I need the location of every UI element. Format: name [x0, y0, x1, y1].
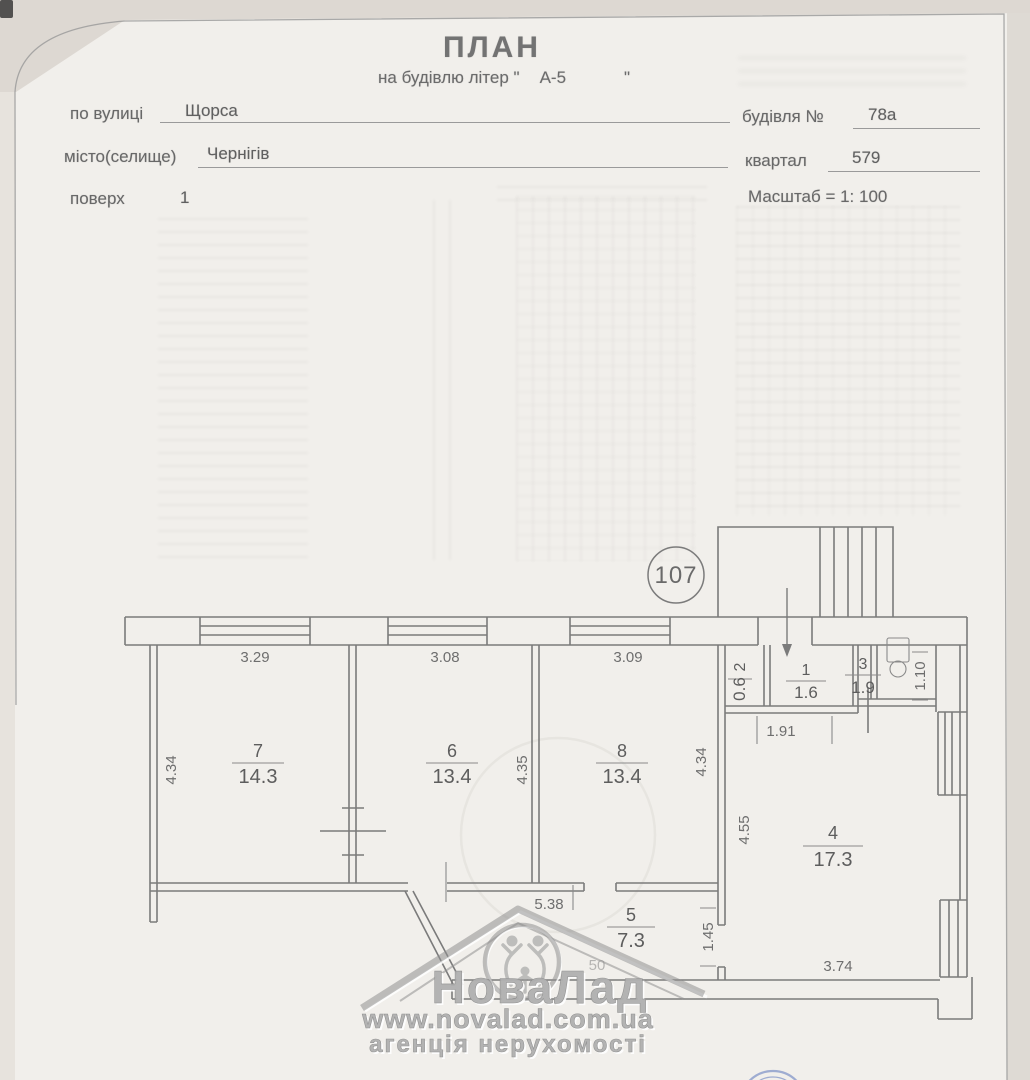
watermark-url: www.novalad.com.ua — [361, 1004, 654, 1034]
right-wall-with-windows — [936, 617, 967, 977]
dim-room8-width: 3.09 — [613, 649, 642, 666]
room2-number: 2 — [732, 662, 749, 671]
unit-number: 107 — [654, 562, 697, 589]
room3-area: 1.9 — [851, 678, 875, 697]
dim-room8-depth: 4.34 — [693, 747, 710, 776]
dim-room6-width: 3.08 — [430, 649, 459, 666]
scan-right-margin — [1007, 13, 1030, 1080]
scan-left-margin — [0, 92, 15, 1080]
stamp-arc — [740, 1071, 806, 1080]
top-wall-with-windows — [125, 617, 967, 645]
dim-bath-height: 1.10 — [912, 661, 929, 690]
watermark-tagline: агенція нерухомості — [369, 1031, 647, 1058]
dim-room5-width: 5.38 — [534, 896, 563, 913]
room3-number: 3 — [859, 656, 868, 673]
room4-number: 4 — [828, 823, 838, 843]
dim-room6-depth: 4.35 — [514, 755, 531, 784]
dim-hall-width: 1.91 — [766, 723, 795, 740]
room5-area: 7.3 — [617, 930, 645, 952]
watermark-logo: НоваЛад НоваЛад www.novalad.com.ua www.n… — [361, 909, 707, 1060]
scan-corner-mark — [0, 0, 13, 18]
room5-number: 5 — [626, 905, 636, 925]
toilet-icon — [887, 638, 909, 677]
staircase — [718, 527, 893, 617]
room6-area: 13.4 — [433, 766, 472, 788]
room4-area: 17.3 — [814, 849, 853, 871]
room8-number: 8 — [617, 741, 627, 761]
dim-room4-width: 3.74 — [823, 958, 852, 975]
room6-number: 6 — [447, 741, 457, 761]
room8-area: 13.4 — [603, 766, 642, 788]
dimension-ticks — [446, 652, 928, 966]
dim-opening-width: 1.45 — [700, 922, 717, 951]
room2-area: 0.6 — [730, 677, 749, 701]
room7-number: 7 — [253, 741, 263, 761]
dim-room7-depth: 4.34 — [163, 755, 180, 784]
unit-number-badge: 107 — [648, 547, 704, 603]
dim-room7-width: 3.29 — [240, 649, 269, 666]
room7-area: 14.3 — [239, 766, 278, 788]
dim-room4-depth: 4.55 — [736, 815, 753, 844]
room1-area: 1.6 — [794, 683, 818, 702]
room1-number: 1 — [802, 662, 811, 679]
scan-top-margin — [0, 0, 1030, 92]
floor-plan-drawing: 107 3.29 3.08 3.09 4.34 4.35 — [0, 0, 1030, 1080]
scanned-plan-page: ПЛАН на будівлю літер "А-5" по вулиці Що… — [0, 0, 1030, 1080]
entrance-arrow — [782, 588, 792, 657]
